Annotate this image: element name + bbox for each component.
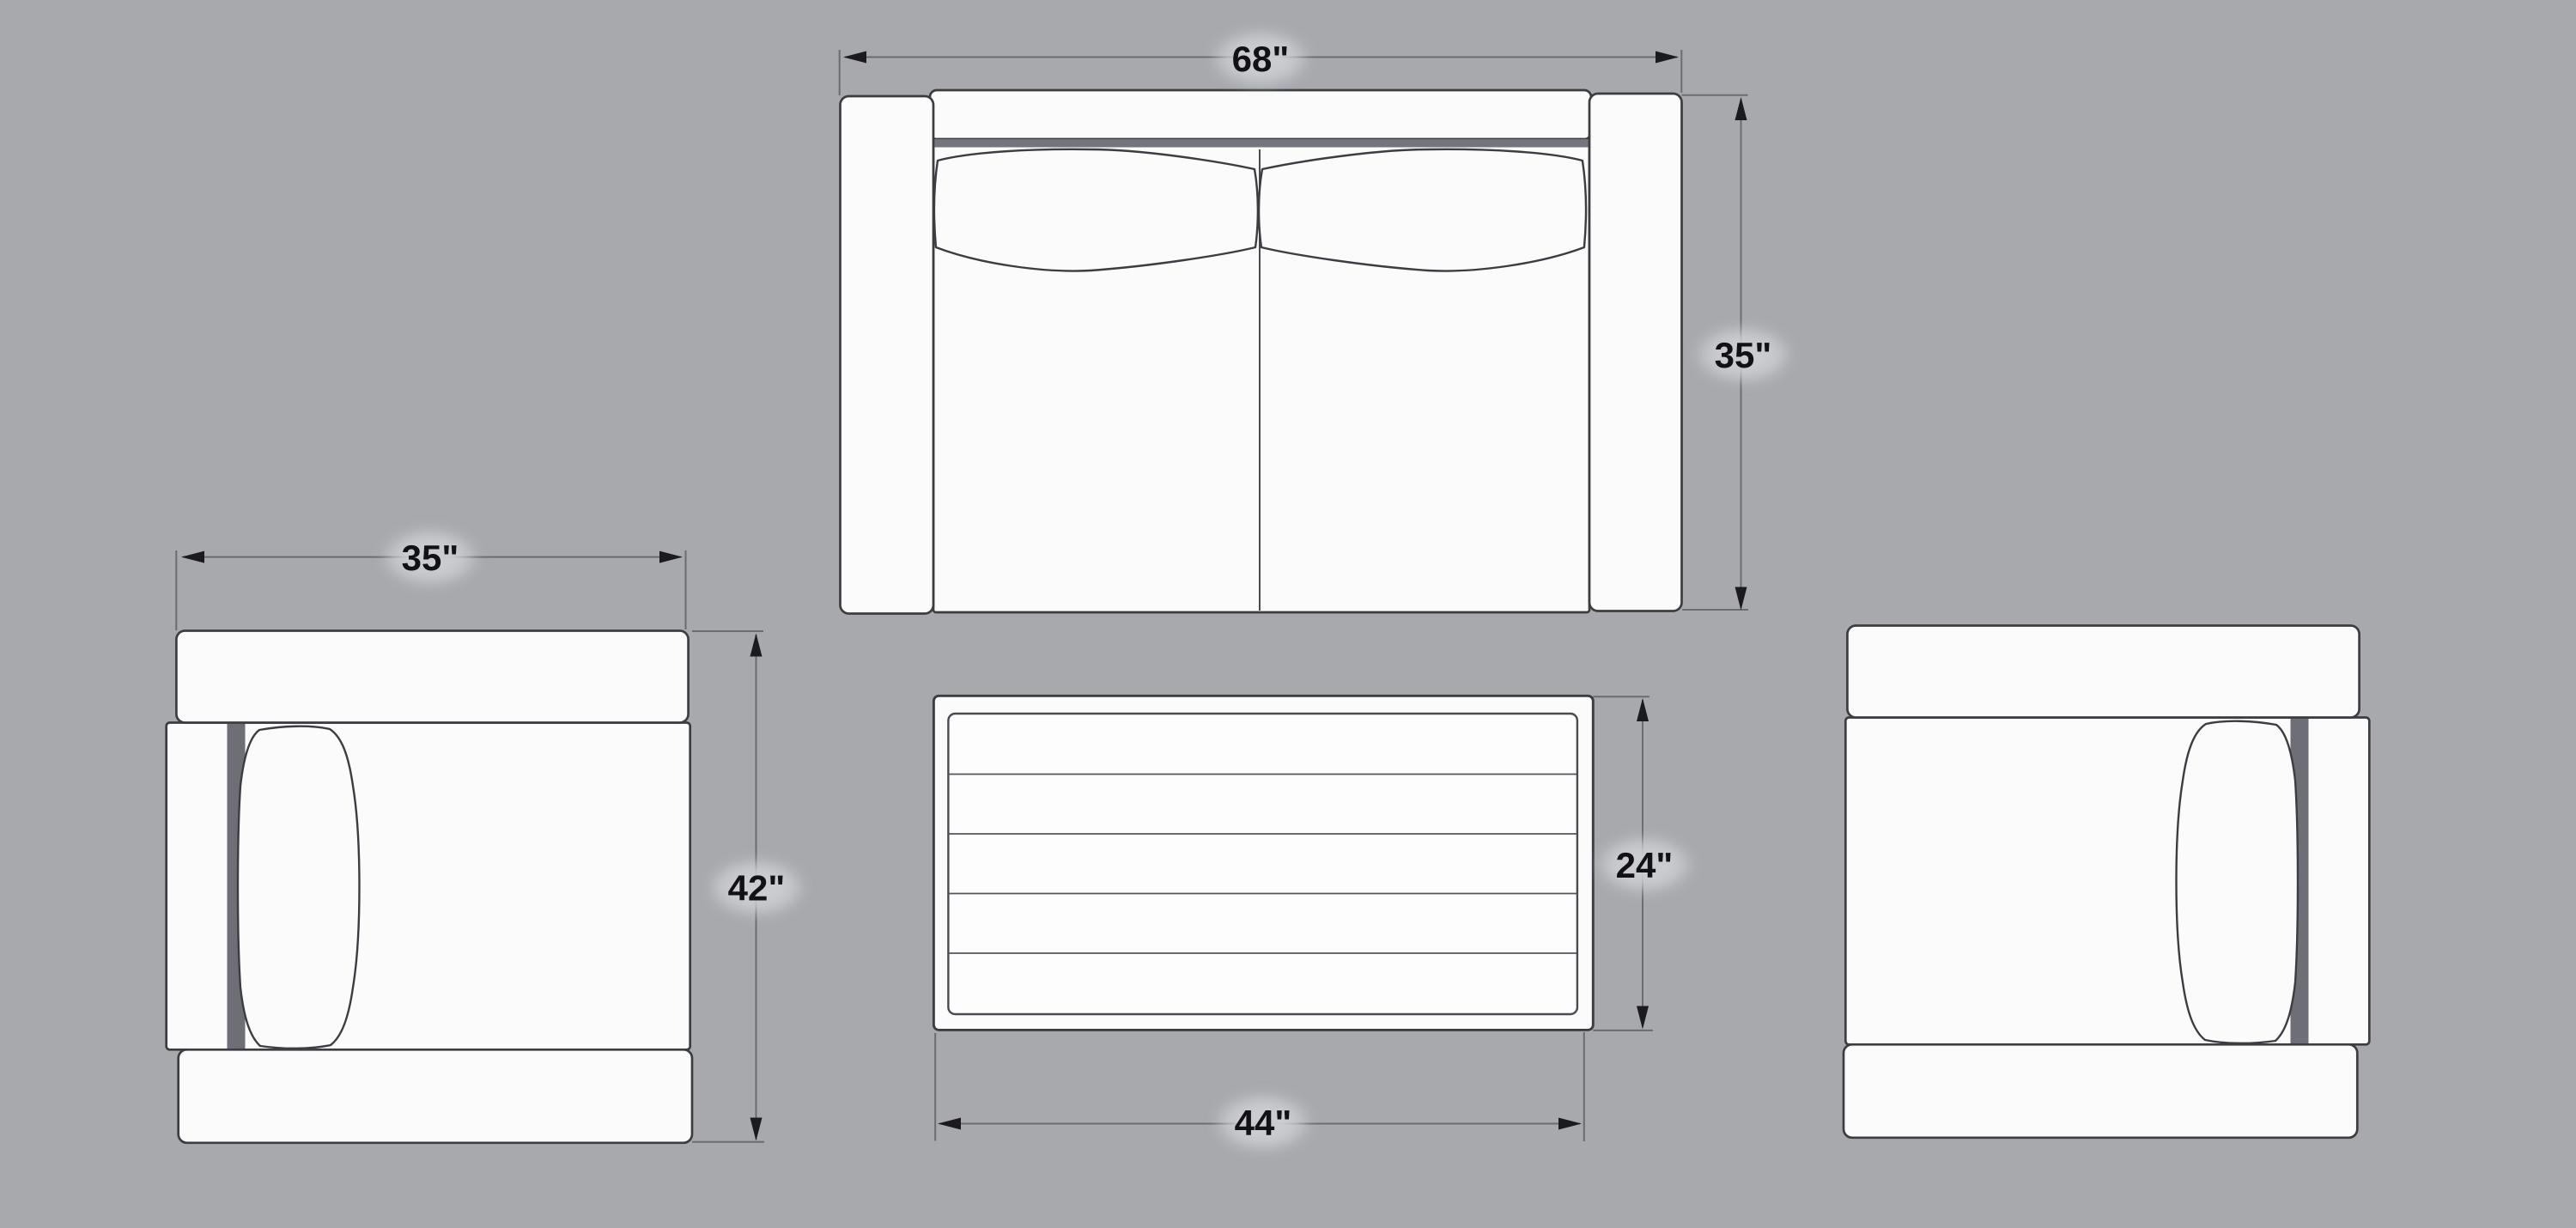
- svg-text:44": 44": [1235, 1103, 1292, 1143]
- svg-text:24": 24": [1616, 845, 1674, 885]
- svg-text:68": 68": [1232, 39, 1290, 79]
- svg-text:35": 35": [1715, 335, 1772, 375]
- svg-text:42": 42": [728, 868, 786, 909]
- svg-text:35": 35": [402, 538, 459, 578]
